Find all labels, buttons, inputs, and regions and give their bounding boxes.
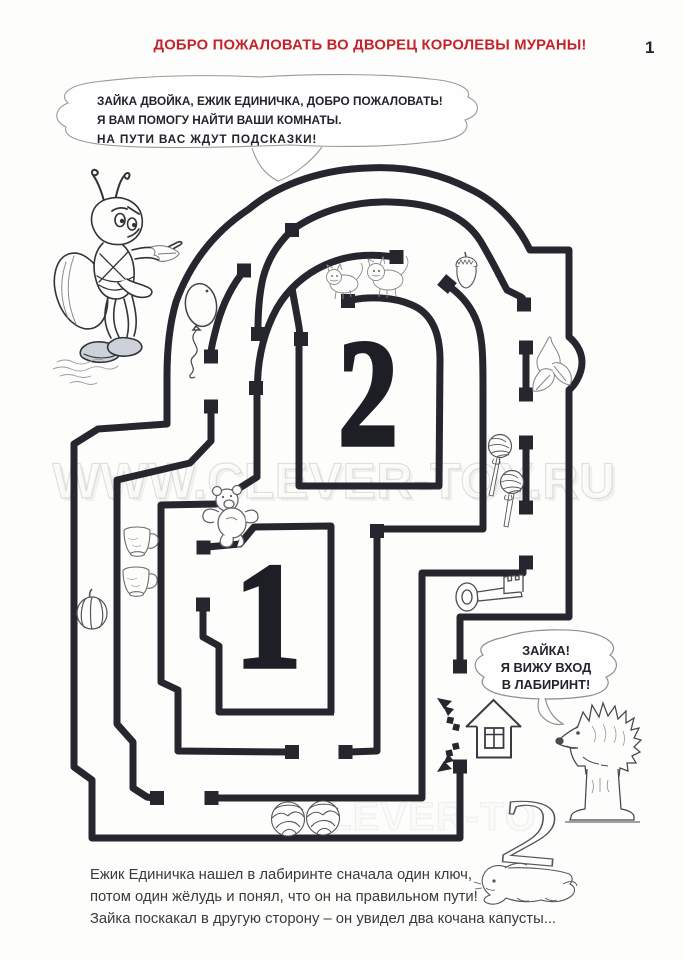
svg-text:1: 1 [234, 533, 302, 701]
svg-text:Ежик Единичка нашел в лабиринт: Ежик Единичка нашел в лабиринте сначала … [90, 867, 472, 883]
svg-text:Зайка поскакал в другую сторон: Зайка поскакал в другую сторону – он уви… [90, 911, 556, 927]
svg-text:ЗАЙКА ДВОЙКА, ЕЖИК ЕДИНИЧКА, Д: ЗАЙКА ДВОЙКА, ЕЖИК ЕДИНИЧКА, ДОБРО ПОЖАЛ… [97, 94, 443, 108]
svg-text:ЗАЙКА!: ЗАЙКА! [522, 643, 570, 658]
svg-text:1: 1 [645, 38, 654, 57]
svg-text:В ЛАБИРИНТ!: В ЛАБИРИНТ! [502, 677, 590, 692]
svg-text:ДОБРО ПОЖАЛОВАТЬ ВО ДВОРЕЦ КОР: ДОБРО ПОЖАЛОВАТЬ ВО ДВОРЕЦ КОРОЛЕВЫ МУРА… [153, 38, 586, 54]
svg-text:НА ПУТИ ВАС ЖДУТ ПОДСКАЗКИ!: НА ПУТИ ВАС ЖДУТ ПОДСКАЗКИ! [97, 132, 317, 146]
svg-text:Я ВАМ ПОМОГУ НАЙТИ ВАШИ КОМНАТ: Я ВАМ ПОМОГУ НАЙТИ ВАШИ КОМНАТЫ. [97, 113, 342, 127]
svg-text:2: 2 [338, 308, 398, 477]
svg-text:Я ВИЖУ ВХОД: Я ВИЖУ ВХОД [501, 660, 591, 675]
svg-text:потом один жёлудь и понял, что: потом один жёлудь и понял, что он на пра… [90, 889, 478, 905]
